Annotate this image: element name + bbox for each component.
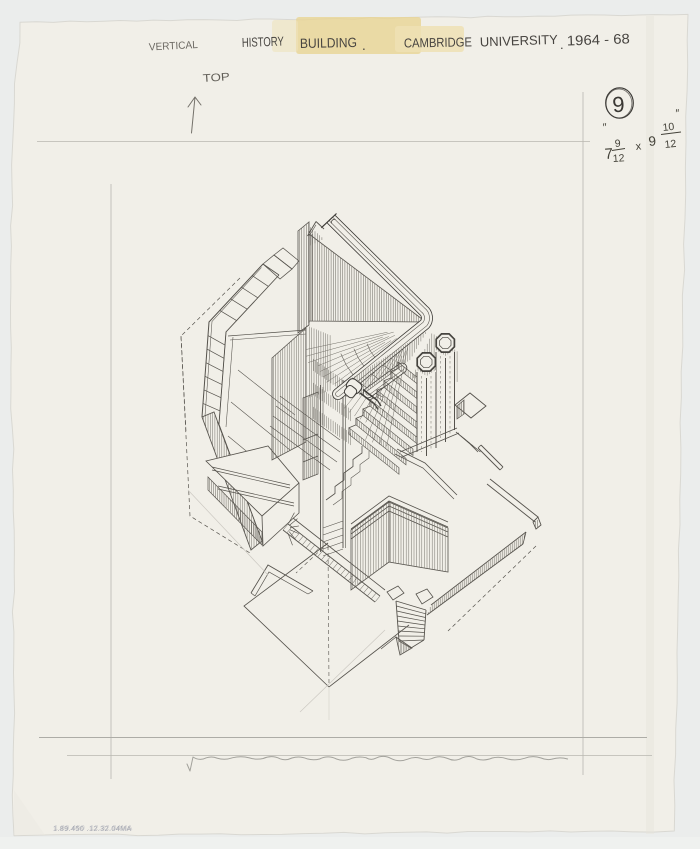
svg-text:1964 - 68: 1964 - 68 <box>567 30 631 48</box>
svg-text:12: 12 <box>664 138 677 151</box>
svg-text:9: 9 <box>648 133 657 149</box>
svg-text:CAMBRIDGE: CAMBRIDGE <box>404 34 473 50</box>
svg-text:VERTICAL: VERTICAL <box>149 39 199 54</box>
svg-text:HISTORY: HISTORY <box>242 34 285 50</box>
svg-text:.: . <box>560 37 564 52</box>
svg-text:UNIVERSITY: UNIVERSITY <box>480 32 559 50</box>
svg-text:TOP: TOP <box>202 71 230 85</box>
svg-text:10: 10 <box>662 121 675 134</box>
svg-text:9: 9 <box>614 138 621 150</box>
svg-text:1.89.450 .12.32.04MA: 1.89.450 .12.32.04MA <box>54 823 133 832</box>
svg-text:9: 9 <box>611 92 625 118</box>
svg-text:BUILDING: BUILDING <box>300 35 357 51</box>
svg-text:.: . <box>362 38 366 53</box>
svg-text:12: 12 <box>612 152 625 165</box>
